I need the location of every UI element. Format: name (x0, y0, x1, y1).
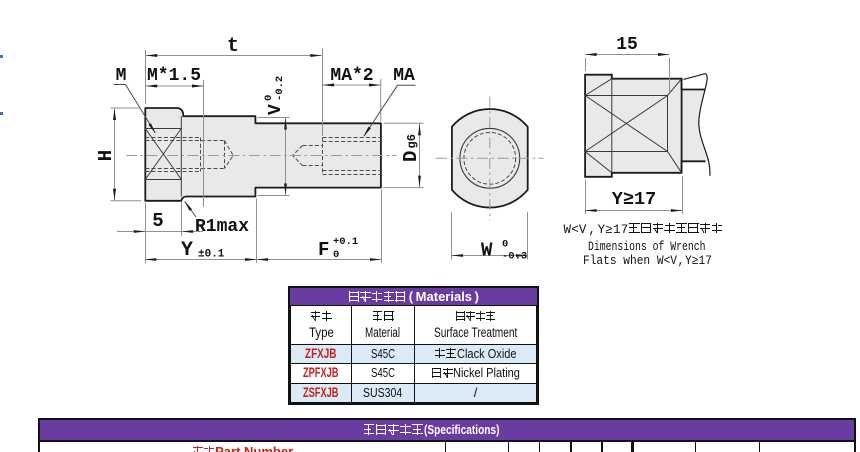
svg-text:R1max: R1max (195, 217, 249, 237)
svg-text:MA*2: MA*2 (330, 66, 373, 86)
svg-text:F: F (318, 239, 329, 261)
svg-text:±0.1: ±0.1 (198, 249, 225, 261)
svg-text:M*1.5: M*1.5 (147, 66, 201, 86)
svg-text:-0.3: -0.3 (502, 251, 527, 263)
svg-text:MA: MA (393, 66, 415, 86)
svg-text:g6: g6 (405, 134, 419, 148)
svg-text:W: W (481, 240, 493, 262)
svg-text:+0.1: +0.1 (333, 236, 358, 248)
svg-text:15: 15 (616, 35, 638, 55)
svg-text:Y: Y (181, 239, 193, 262)
svg-text:0: 0 (333, 249, 339, 261)
svg-text:5: 5 (152, 210, 163, 232)
svg-text:D: D (400, 151, 422, 162)
svg-text:H: H (95, 150, 117, 161)
svg-text:Y≥17: Y≥17 (612, 189, 656, 210)
svg-text:V: V (266, 104, 286, 115)
svg-text:M: M (116, 66, 127, 86)
svg-text:-0.2: -0.2 (274, 76, 286, 101)
svg-text:t: t (227, 35, 239, 58)
svg-text:0: 0 (502, 239, 508, 251)
